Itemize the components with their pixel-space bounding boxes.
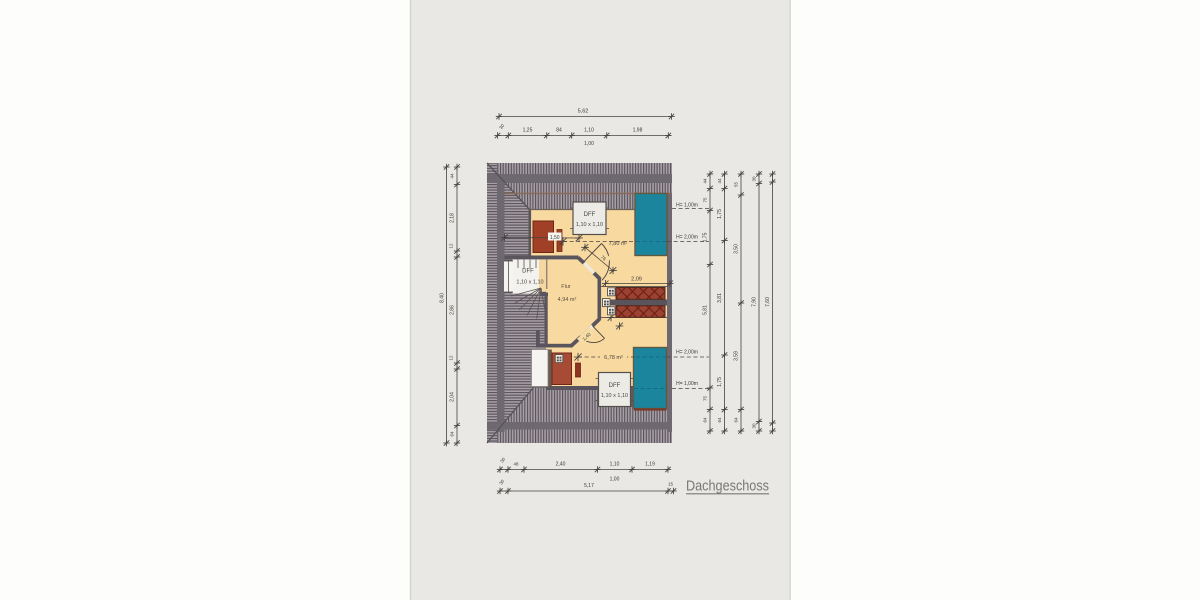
svg-text:64: 64 <box>717 417 722 423</box>
svg-text:30: 30 <box>752 423 757 429</box>
svg-text:5,17: 5,17 <box>584 483 594 489</box>
svg-text:4,94 m²: 4,94 m² <box>558 297 577 303</box>
svg-text:DFF: DFF <box>584 212 596 218</box>
svg-text:H= 1,00m: H= 1,00m <box>676 381 698 387</box>
svg-text:7,60: 7,60 <box>765 297 771 307</box>
svg-text:1,75: 1,75 <box>717 209 723 219</box>
svg-text:3,50: 3,50 <box>734 244 740 254</box>
svg-text:48: 48 <box>513 462 519 467</box>
svg-text:2,86: 2,86 <box>450 305 456 315</box>
svg-text:55: 55 <box>734 182 739 188</box>
svg-text:Flur: Flur <box>561 284 571 290</box>
svg-text:2,18: 2,18 <box>450 213 456 223</box>
svg-text:64: 64 <box>703 417 708 423</box>
svg-text:3,81: 3,81 <box>717 293 723 303</box>
svg-text:2,09: 2,09 <box>631 277 642 283</box>
svg-text:1,10 x 1,10: 1,10 x 1,10 <box>516 280 543 286</box>
svg-text:64: 64 <box>450 431 455 437</box>
svg-text:2,40: 2,40 <box>556 462 566 468</box>
svg-text:1,98: 1,98 <box>633 128 643 134</box>
svg-text:7,80 m²: 7,80 m² <box>609 241 628 247</box>
svg-text:H= 2,00m: H= 2,00m <box>676 350 698 356</box>
svg-text:5,62: 5,62 <box>578 109 589 115</box>
svg-text:5,81: 5,81 <box>703 305 709 315</box>
svg-text:7,90: 7,90 <box>752 297 758 307</box>
svg-text:44: 44 <box>450 173 455 179</box>
svg-text:64: 64 <box>734 417 739 423</box>
svg-text:3,59: 3,59 <box>734 351 740 361</box>
svg-text:75: 75 <box>703 396 708 402</box>
svg-text:DFF: DFF <box>609 383 621 389</box>
svg-text:1,10: 1,10 <box>584 128 594 134</box>
svg-text:8,40: 8,40 <box>440 293 446 303</box>
svg-text:1,75: 1,75 <box>703 232 709 242</box>
svg-text:1,19: 1,19 <box>645 462 655 468</box>
svg-text:1,00: 1,00 <box>610 477 620 483</box>
svg-text:30: 30 <box>752 176 757 182</box>
svg-text:75: 75 <box>703 197 708 203</box>
svg-text:H= 2,00m: H= 2,00m <box>676 235 698 241</box>
svg-text:1,00: 1,00 <box>584 141 594 147</box>
svg-text:1,10 x 1,10: 1,10 x 1,10 <box>601 393 628 399</box>
svg-text:44: 44 <box>717 178 722 184</box>
svg-text:1,75: 1,75 <box>717 377 723 387</box>
svg-text:DFF: DFF <box>522 269 534 275</box>
svg-text:H= 1,00m: H= 1,00m <box>676 203 698 209</box>
svg-text:1,10: 1,10 <box>610 462 620 468</box>
svg-text:12: 12 <box>449 355 454 361</box>
svg-text:15: 15 <box>668 482 674 487</box>
svg-text:1,50: 1,50 <box>550 235 560 241</box>
svg-text:1,10 x 1,10: 1,10 x 1,10 <box>576 222 603 228</box>
svg-text:2,04: 2,04 <box>450 392 456 402</box>
svg-text:6,78 m²: 6,78 m² <box>604 355 623 361</box>
svg-text:Dachgeschoss: Dachgeschoss <box>686 478 769 495</box>
svg-text:84: 84 <box>556 128 562 134</box>
svg-text:1,25: 1,25 <box>523 128 533 134</box>
svg-text:44: 44 <box>703 178 708 184</box>
svg-text:12: 12 <box>449 243 454 249</box>
